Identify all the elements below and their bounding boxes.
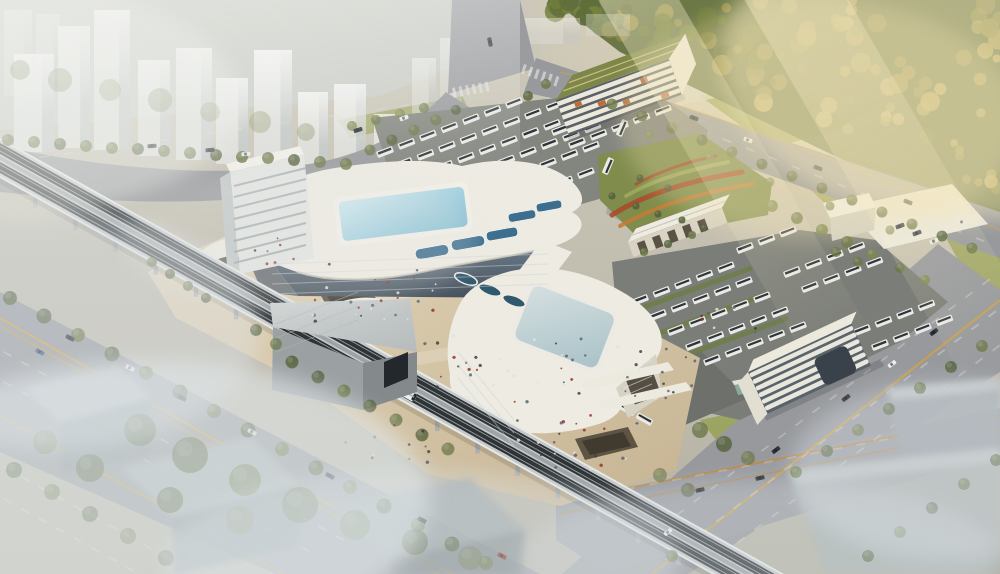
person	[667, 390, 670, 393]
person	[577, 392, 580, 395]
tree-highlight	[679, 217, 682, 220]
person	[431, 309, 434, 312]
forest-tree	[722, 3, 732, 13]
person	[421, 430, 424, 433]
tree	[653, 468, 667, 482]
person	[574, 453, 578, 457]
person	[575, 423, 577, 425]
person	[423, 342, 426, 345]
person	[427, 450, 430, 453]
person	[635, 422, 638, 425]
person	[715, 308, 718, 311]
person	[754, 327, 757, 330]
person	[533, 338, 536, 341]
transit-hub-aerial-rendering	[0, 0, 1000, 574]
person	[425, 446, 427, 448]
person	[517, 438, 521, 442]
tree-highlight	[947, 362, 952, 367]
tree	[364, 400, 377, 413]
tree-highlight	[665, 241, 669, 245]
person	[476, 369, 478, 371]
person	[589, 467, 592, 470]
tree-highlight	[718, 438, 725, 445]
person	[383, 318, 385, 320]
tree	[338, 385, 351, 398]
tree	[609, 193, 616, 200]
tree	[831, 247, 841, 257]
person	[358, 306, 360, 308]
tree-highlight	[272, 339, 277, 344]
person	[701, 318, 704, 321]
tree	[390, 414, 403, 427]
person	[690, 384, 693, 387]
person	[662, 382, 665, 385]
tree-highlight	[524, 92, 529, 97]
person	[514, 401, 516, 403]
tree-highlight	[832, 248, 837, 253]
person	[407, 318, 409, 320]
person	[625, 457, 627, 459]
tree	[701, 225, 708, 232]
person	[436, 341, 439, 344]
person	[355, 313, 357, 315]
person	[467, 397, 469, 399]
tree-highlight	[655, 211, 658, 214]
person	[589, 414, 592, 417]
tree-highlight	[313, 372, 319, 378]
tree	[312, 371, 325, 384]
person	[452, 334, 456, 338]
person	[554, 453, 556, 455]
person	[562, 384, 564, 386]
person	[561, 354, 563, 356]
person	[621, 456, 624, 459]
rendering-canvas	[0, 0, 1000, 574]
person	[634, 395, 636, 397]
person	[537, 441, 540, 444]
tree-highlight	[287, 357, 293, 363]
person	[570, 378, 573, 381]
tree	[637, 175, 644, 182]
person	[474, 356, 477, 359]
person	[672, 391, 674, 393]
person	[685, 356, 687, 358]
tree	[640, 248, 648, 256]
person	[594, 455, 597, 458]
person	[500, 358, 502, 360]
tree	[716, 436, 732, 452]
person	[707, 312, 710, 315]
person	[558, 433, 560, 435]
person	[580, 338, 583, 341]
tree-highlight	[689, 232, 693, 236]
person	[479, 364, 482, 367]
person	[540, 454, 542, 456]
person	[732, 306, 735, 309]
person	[555, 342, 557, 344]
tree	[286, 356, 299, 369]
tree	[741, 451, 755, 465]
tree-highlight	[365, 401, 371, 407]
tree	[523, 91, 533, 101]
person	[426, 460, 429, 463]
tree-highlight	[868, 250, 873, 255]
person	[516, 419, 519, 422]
person	[554, 466, 557, 469]
tree	[688, 231, 696, 239]
person	[417, 300, 420, 303]
person	[664, 397, 667, 400]
person	[754, 331, 756, 333]
person	[469, 373, 472, 376]
person	[563, 381, 565, 383]
tree-highlight	[391, 415, 397, 421]
tree-highlight	[655, 469, 661, 475]
person	[571, 359, 574, 362]
mist	[120, 170, 480, 310]
person	[507, 369, 510, 372]
person	[370, 308, 372, 310]
person	[535, 448, 537, 450]
person	[665, 348, 668, 351]
tree-highlight	[743, 452, 749, 458]
person	[661, 371, 664, 374]
person	[371, 304, 374, 307]
person	[394, 314, 396, 316]
tree	[633, 203, 640, 210]
person	[565, 354, 568, 357]
person	[536, 381, 538, 383]
person	[599, 464, 603, 468]
tree-highlight	[694, 424, 701, 431]
person	[603, 427, 605, 429]
person	[311, 313, 314, 316]
tree-highlight	[609, 193, 612, 196]
person	[584, 354, 586, 356]
person	[452, 356, 455, 359]
tree-highlight	[608, 100, 613, 105]
person	[512, 374, 516, 378]
person	[360, 315, 362, 317]
person	[639, 350, 642, 353]
tree-highlight	[443, 444, 449, 450]
tree	[679, 217, 686, 224]
tree	[853, 257, 863, 267]
tree-highlight	[339, 386, 345, 392]
person	[551, 455, 554, 458]
person	[467, 368, 470, 371]
tower-haze	[524, 18, 580, 39]
tree-highlight	[633, 203, 636, 206]
tree	[655, 211, 662, 218]
tree	[607, 99, 618, 110]
tree-highlight	[542, 80, 547, 85]
person	[560, 367, 562, 369]
person	[435, 385, 438, 388]
tree	[270, 338, 282, 350]
tree-highlight	[641, 249, 645, 253]
person	[408, 443, 411, 446]
person	[513, 436, 515, 438]
person	[492, 384, 495, 387]
tree	[867, 249, 877, 259]
person	[655, 398, 657, 400]
tower-slab	[524, 18, 580, 44]
tree	[664, 240, 672, 248]
person	[562, 420, 565, 423]
person	[393, 424, 395, 426]
person	[624, 390, 626, 392]
tree	[442, 443, 455, 456]
tree-highlight	[854, 258, 859, 263]
person	[583, 429, 586, 432]
person	[525, 400, 528, 403]
person	[553, 441, 555, 443]
person	[700, 315, 702, 317]
tree-highlight	[637, 175, 640, 178]
person	[616, 345, 619, 348]
person	[693, 360, 696, 363]
tree	[541, 79, 551, 89]
person	[713, 326, 716, 329]
tree	[692, 422, 708, 438]
person	[440, 376, 442, 378]
person	[431, 290, 433, 292]
tree-highlight	[701, 225, 704, 228]
